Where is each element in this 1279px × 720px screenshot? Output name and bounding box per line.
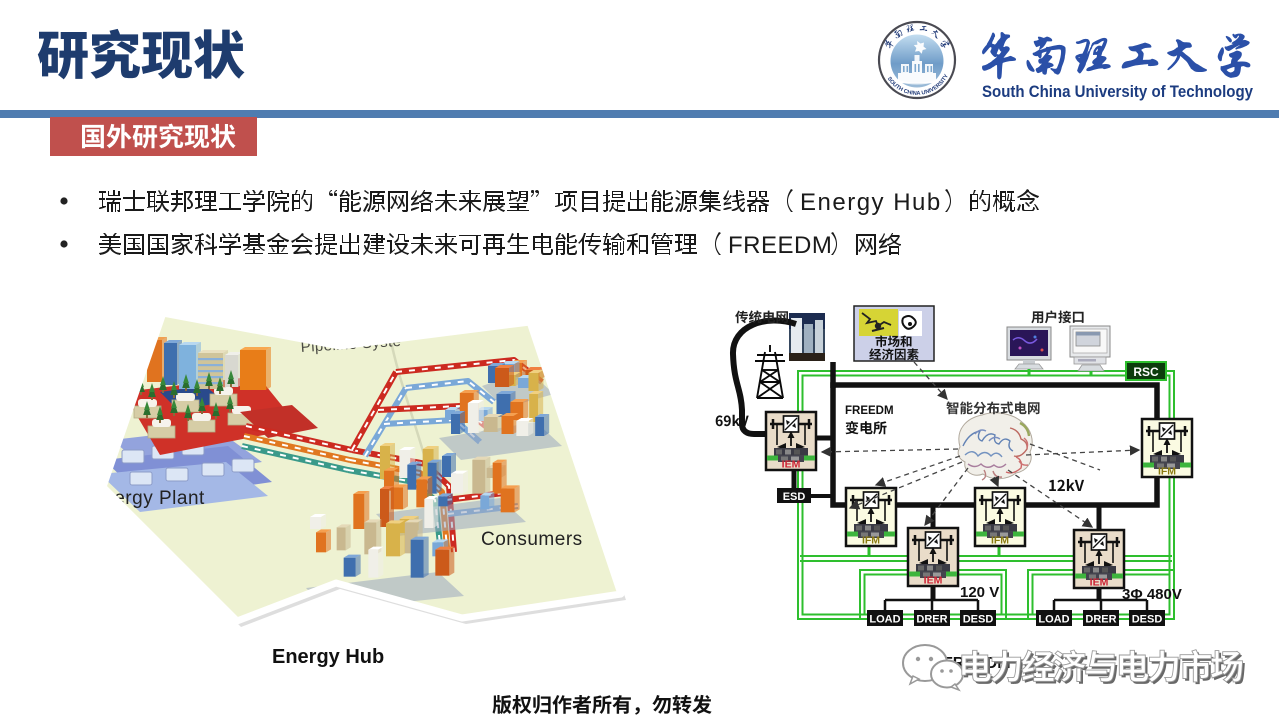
svg-text:DESD: DESD [963,614,994,626]
svg-text:DESD: DESD [1132,614,1163,626]
svg-text:DRER: DRER [916,614,947,626]
svg-text:IEM: IEM [1090,577,1109,589]
svg-text:IEM: IEM [924,575,943,587]
svg-text:IFM: IFM [991,535,1009,547]
svg-text:LOAD: LOAD [1038,614,1069,626]
svg-text:120 V: 120 V [960,584,999,601]
svg-text:IFM: IFM [1158,466,1176,478]
svg-text:3Φ 480V: 3Φ 480V [1122,586,1182,603]
svg-text:FREEDM: FREEDM [845,405,894,417]
svg-text:RSC: RSC [1133,365,1159,379]
svg-text:ESD: ESD [783,491,806,503]
svg-text:LOAD: LOAD [869,614,900,626]
svg-text:IFM: IFM [862,535,880,547]
svg-text:DRER: DRER [1085,614,1116,626]
svg-text:IEM: IEM [782,459,801,471]
